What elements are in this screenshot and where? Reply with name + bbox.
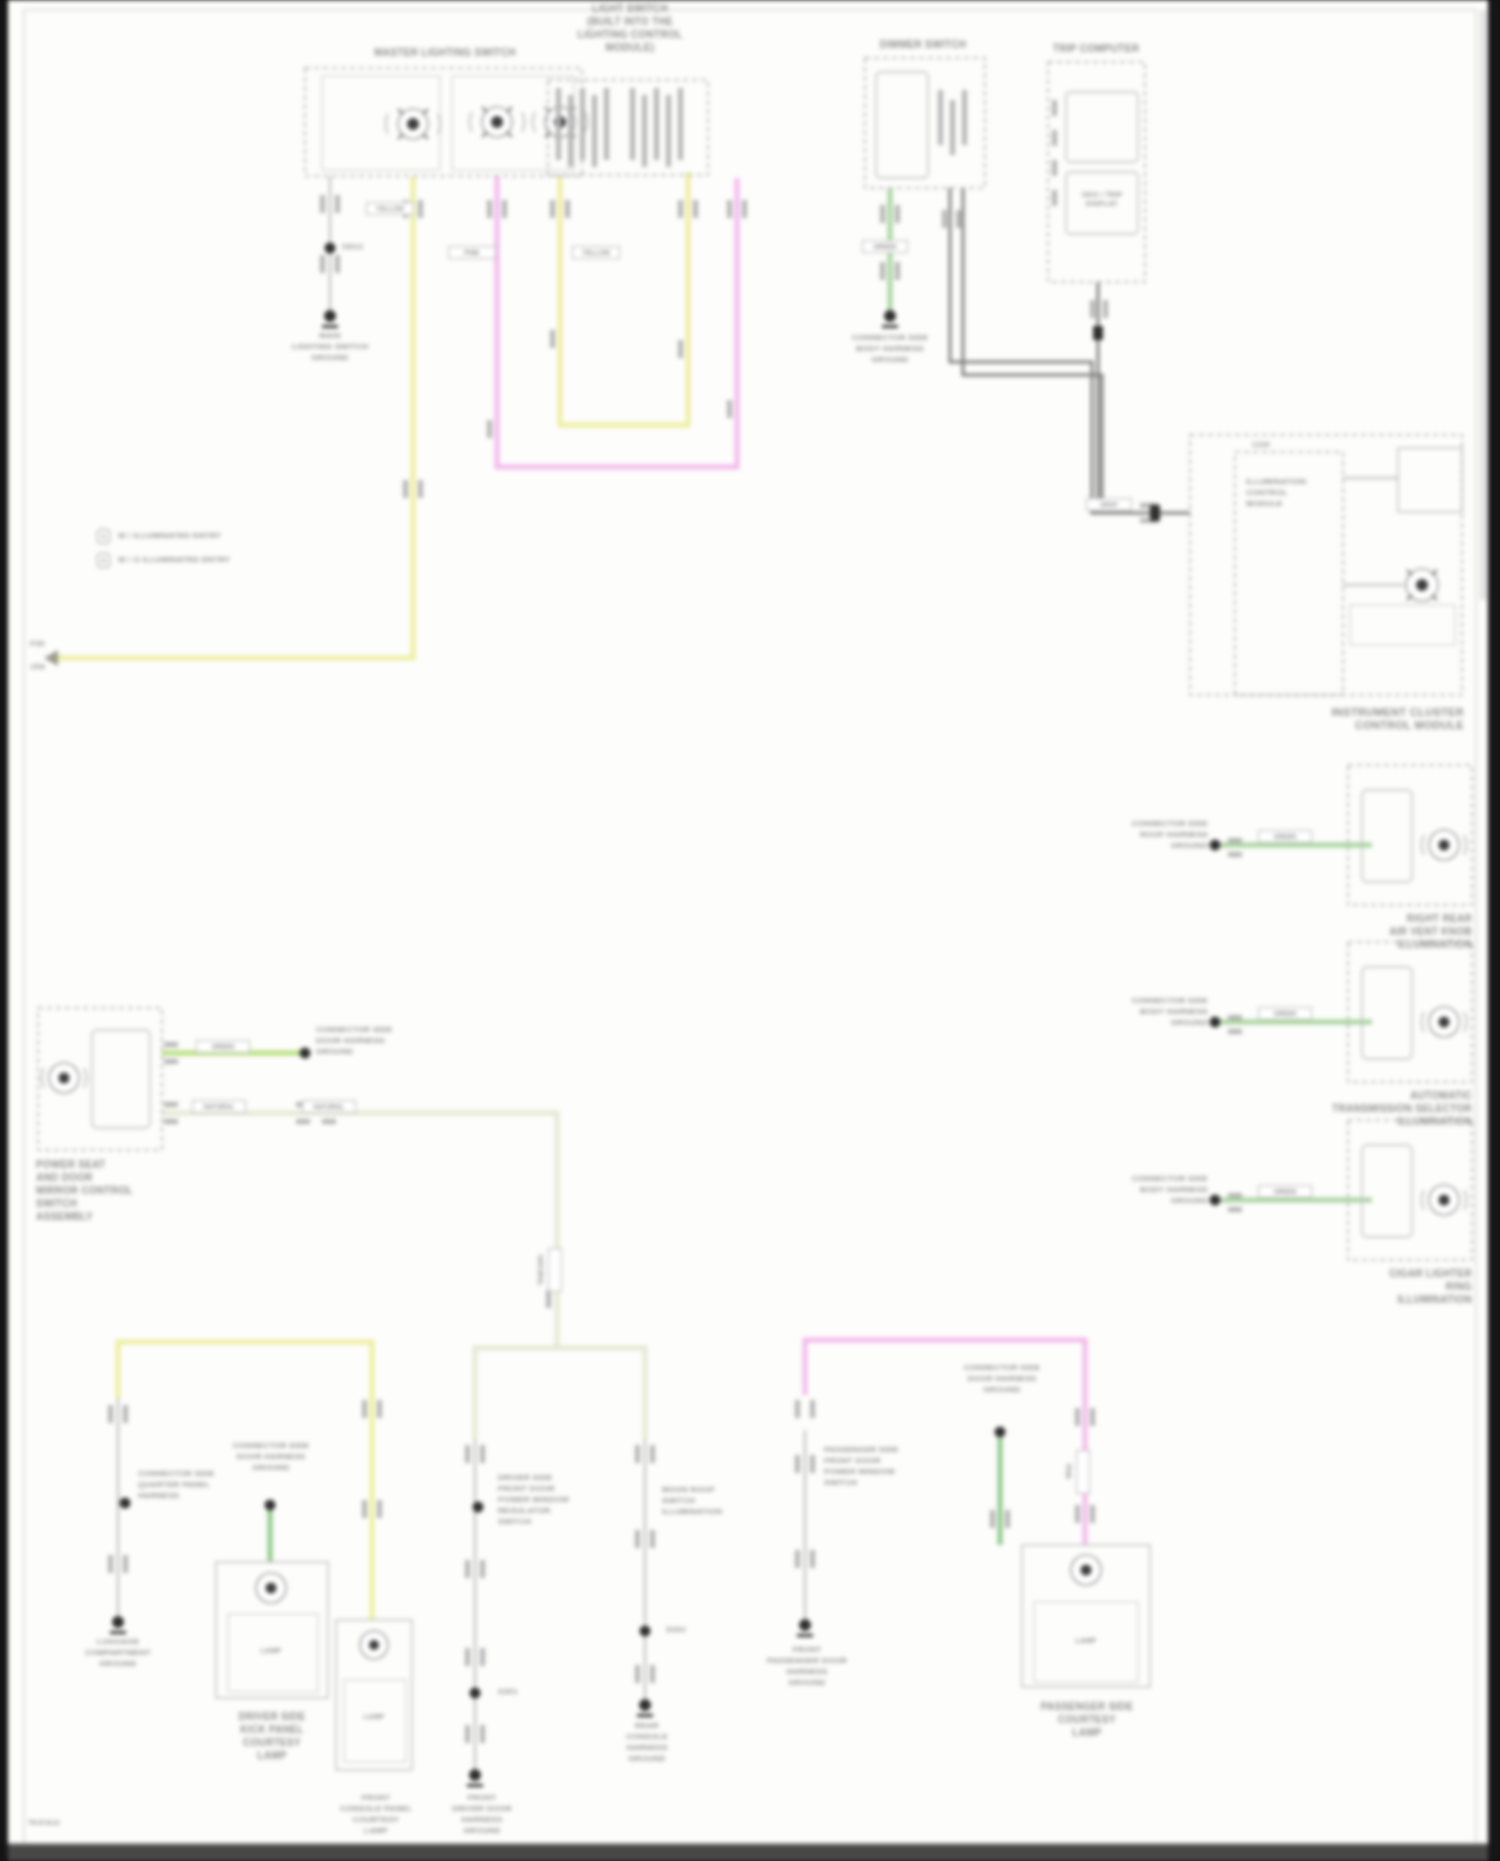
page-code: TK47A12 (28, 1818, 148, 1827)
colB-splice-label: S302 (666, 1624, 706, 1635)
wire-tag-yellow1: YELLOW (366, 202, 414, 215)
splice-id-label: GD11 (342, 241, 392, 252)
light-check-title: LIGHT SWITCH (BUILT INTO THE LIGHTING CO… (545, 2, 715, 54)
scanned-wiring-diagram: MASTER LIGHTING SWITCH GD11 MAIN LIGHTIN… (0, 0, 1500, 1861)
u2-name: AUTOMATIC TRANSMISSION SELECTOR ILLUMINA… (1320, 1089, 1472, 1128)
wire-tag-u1: GREEN (1258, 830, 1312, 843)
colA-ground-label: FRONT DRIVER DOOR HARNESS GROUND (432, 1792, 532, 1836)
pinkcol-side-label: PASSENGER SIDE FRONT DOOR POWER WINDOW S… (824, 1444, 936, 1488)
doorlamp-name: DRIVER SIDE KICK PANEL COURTESY LAMP (206, 1710, 338, 1762)
wire-tag-mirror-green: GREEN (196, 1040, 250, 1053)
pinkcol-ground-label: FRONT PASSENGER DOOR HARNESS GROUND (752, 1644, 862, 1688)
u1-name: RIGHT REAR AIR VENT KNOB ILLUMINATION (1320, 912, 1472, 951)
fuse-rating-label: 15A (30, 661, 64, 672)
bl-ground-label: LUGGAGE COMPARTMENT GROUND (58, 1636, 178, 1669)
mirror-connector-label: CONNECTOR SIDE DOOR HARNESS GROUND (316, 1024, 426, 1057)
wire-tag-u2: GREEN (1258, 1007, 1312, 1020)
wire-tag-u3: GREEN (1258, 1185, 1312, 1198)
wire-tag-pink-vert: PINK (1076, 1450, 1090, 1494)
colB-side-label: MOON ROOF SWITCH ILLUMINATION (662, 1484, 762, 1517)
wire-tag-natural-2: NATURAL (302, 1100, 356, 1113)
u3-name: CIGAR LIGHTER RING ILLUMINATION (1320, 1267, 1472, 1306)
wire-tag-pink1: PINK (448, 246, 496, 259)
wire-tag-natural-1: NATURAL (192, 1100, 246, 1113)
master-switch-title: MASTER LIGHTING SWITCH (325, 46, 565, 59)
wiring-diagram-canvas (0, 0, 1500, 1861)
dimmer-title: DIMMER SWITCH (858, 38, 988, 51)
legend-text-2: W / O ILLUMINATED ENTRY (118, 554, 368, 565)
mirror-switch-name: POWER SEAT AND DOOR MIRROR CONTROL SWITC… (36, 1158, 196, 1223)
wire-tag-gray: GRAY (1086, 498, 1132, 511)
legend-icon-1: 1 (97, 529, 110, 544)
trip-computer-title: TRIP COMPUTER (1040, 42, 1152, 55)
master-switch-ground-label: MAIN LIGHTING SWITCH GROUND (268, 330, 392, 363)
legend-text-1: W / ILLUMINATED ENTRY (118, 530, 368, 541)
u2-connector-label: CONNECTOR SIDE BODY HARNESS GROUND (1100, 995, 1208, 1028)
doorlamp-inner-label: LAMP (248, 1646, 294, 1655)
consolelamp-inner-label: LAMP (352, 1712, 396, 1721)
cluster-inner-label: ILLUMINATION CONTROL MODULE (1246, 476, 1342, 509)
wire-tag-green-dimmer: GREEN (862, 240, 908, 253)
courtesy-name: PASSENGER SIDE COURTESY LAMP (1022, 1700, 1152, 1739)
wire-tag-natural-vert: NATURAL (548, 1248, 562, 1292)
legend-icon-2: 2 (97, 553, 110, 568)
wire-tag-yellow2: YELLOW (572, 246, 620, 259)
courtesy-inner-label: LAMP (1062, 1636, 1110, 1645)
courtesy-connector-label: CONNECTOR SIDE DOOR HARNESS GROUND (944, 1362, 1060, 1395)
consolelamp-name: FRONT CONSOLE PANEL COURTESY LAMP (316, 1792, 436, 1836)
colA-side-label: DRIVER SIDE FRONT DOOR POWER WINDOW REGU… (498, 1472, 608, 1527)
trip-display-label: ODO / TRIP DISPLAY (1068, 190, 1136, 208)
fuse-label: F30 (30, 638, 64, 649)
diagram-photo: MASTER LIGHTING SWITCH GD11 MAIN LIGHTIN… (0, 0, 1500, 1861)
u3-connector-label: CONNECTOR SIDE BODY HARNESS GROUND (1100, 1173, 1208, 1206)
dimmer-ground-label: CONNECTOR SIDE BODY HARNESS GROUND (828, 332, 952, 365)
bulb-icon (1406, 569, 1438, 601)
doorlamp-connector-label: CONNECTOR SIDE DOOR HARNESS GROUND (212, 1440, 330, 1473)
u1-connector-label: CONNECTOR SIDE ROOF HARNESS GROUND (1100, 818, 1208, 851)
colA-splice-label: S301 (498, 1686, 538, 1697)
cluster-name: INSTRUMENT CLUSTER CONTROL MODULE (1240, 706, 1464, 732)
cluster-connector-id: C230 (1252, 440, 1302, 449)
colB-ground-label: REAR CONSOLE HARNESS GROUND (592, 1720, 702, 1764)
